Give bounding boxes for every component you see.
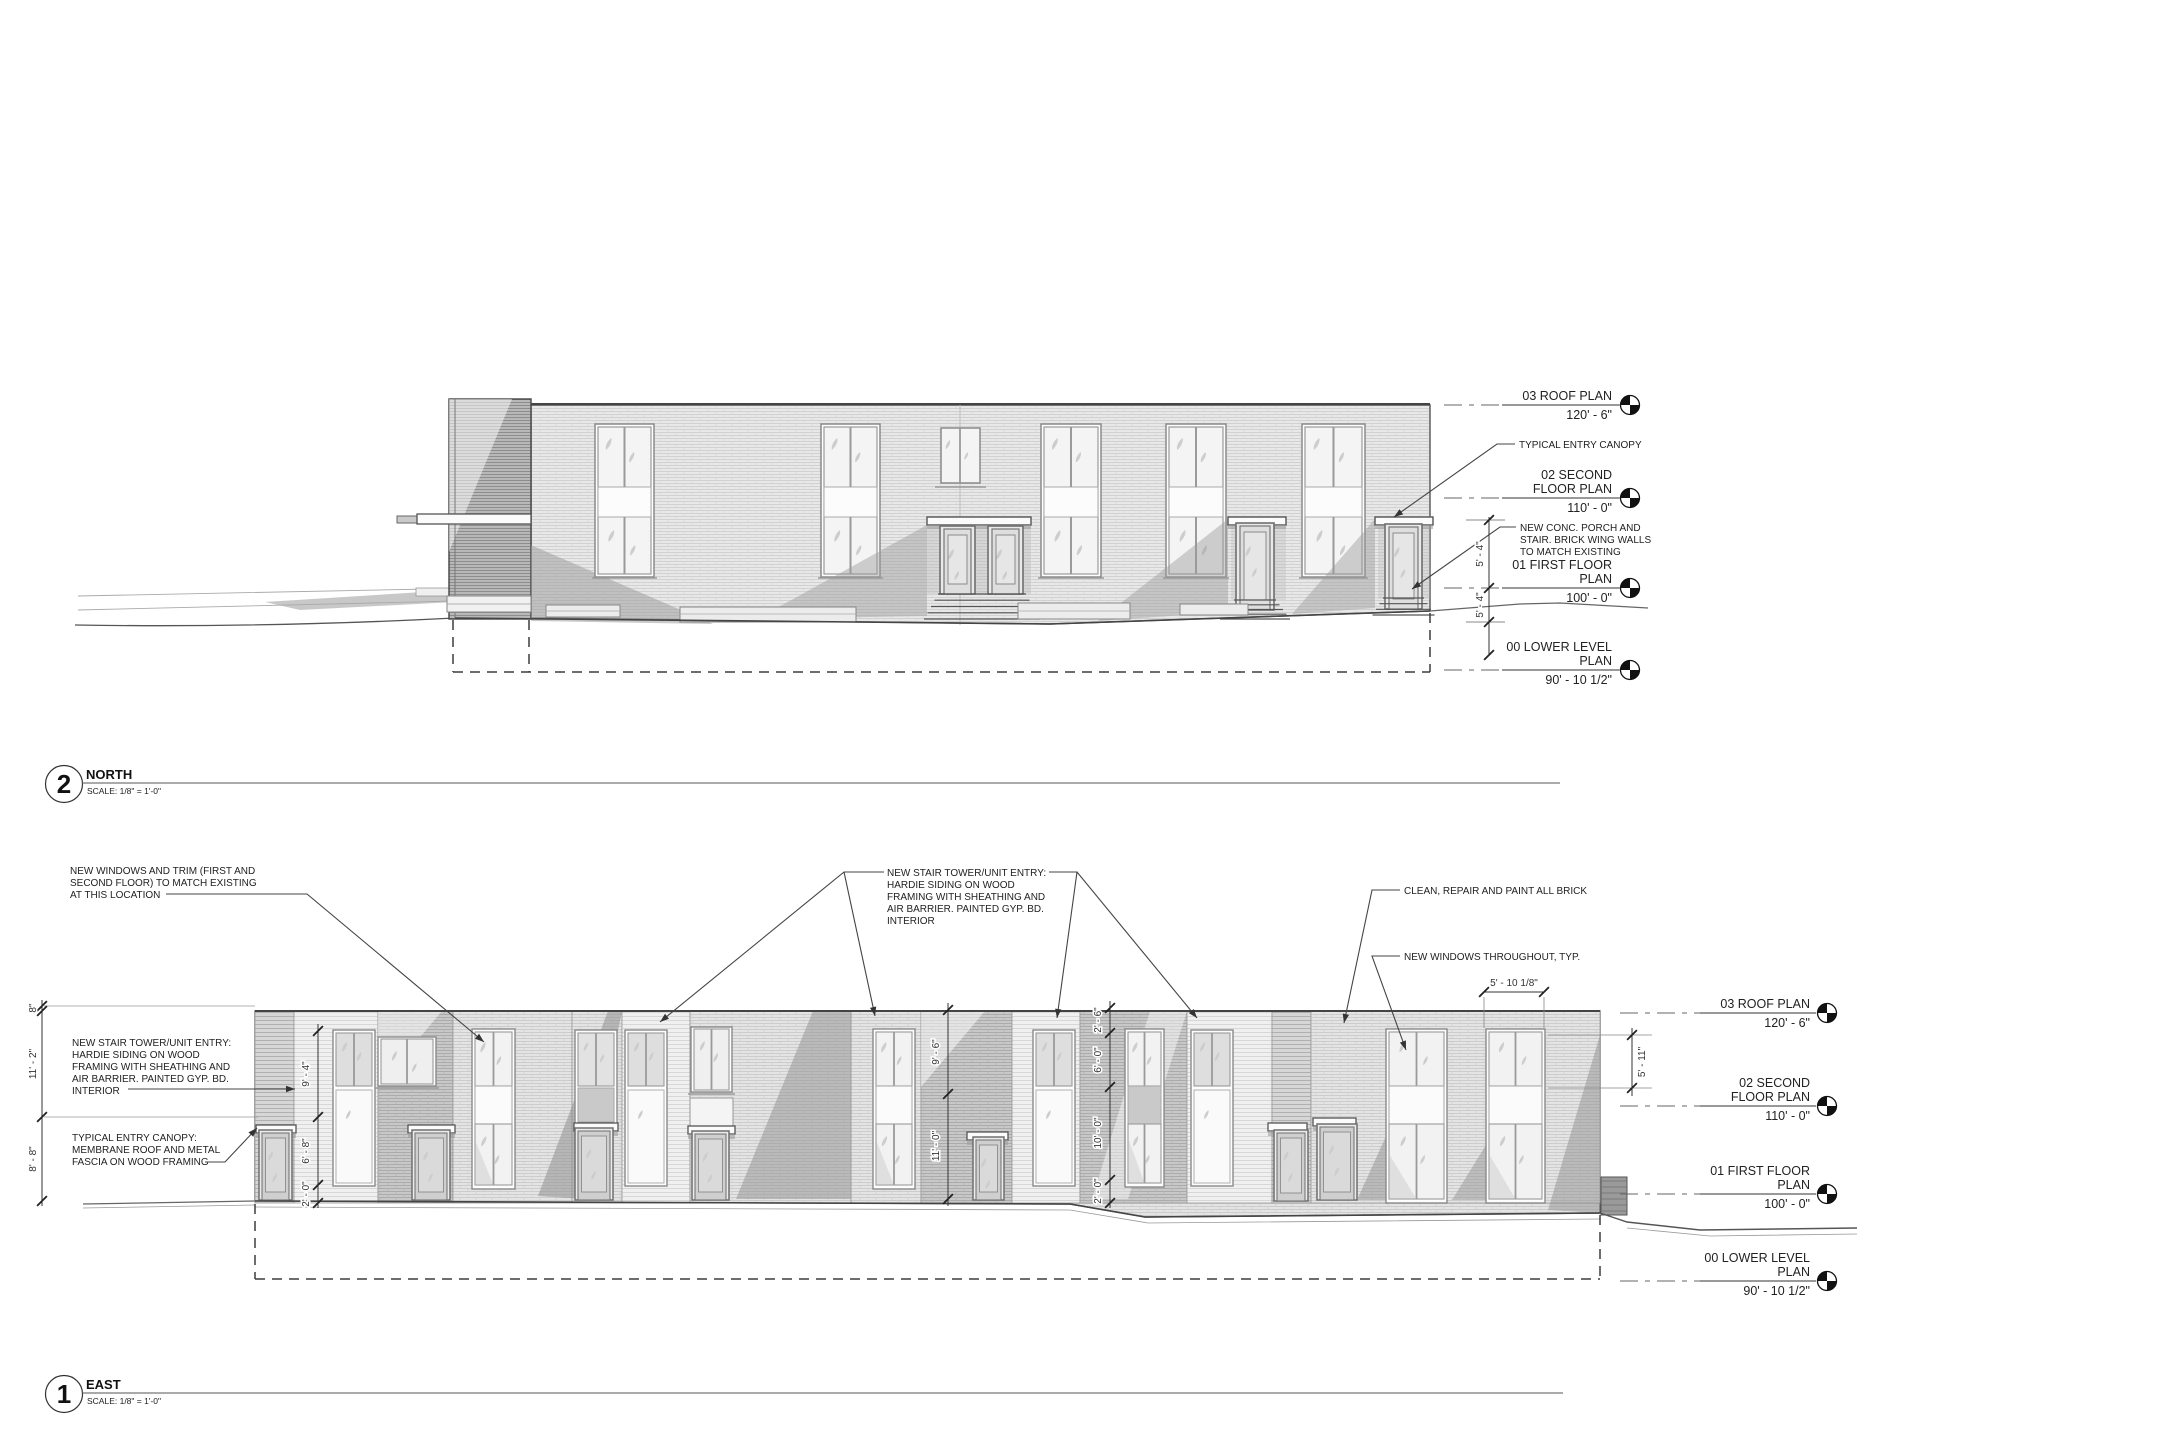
svg-text:100' - 0": 100' - 0" (1764, 1197, 1810, 1211)
svg-text:PLAN: PLAN (1579, 654, 1612, 668)
svg-text:00 LOWER LEVEL: 00 LOWER LEVEL (1506, 640, 1612, 654)
svg-text:FRAMING WITH SHEATHING AND: FRAMING WITH SHEATHING AND (72, 1062, 230, 1073)
svg-text:1: 1 (57, 1379, 71, 1409)
svg-text:02 SECOND: 02 SECOND (1541, 468, 1612, 482)
svg-text:120' - 6": 120' - 6" (1566, 408, 1612, 422)
svg-text:6' - 8": 6' - 8" (301, 1138, 312, 1164)
svg-text:FLOOR PLAN: FLOOR PLAN (1731, 1090, 1810, 1104)
svg-text:11' - 0": 11' - 0" (931, 1130, 942, 1161)
svg-text:110' - 0": 110' - 0" (1765, 1109, 1810, 1123)
svg-text:100' - 0": 100' - 0" (1566, 591, 1612, 605)
svg-text:SCALE: 1/8" = 1'-0": SCALE: 1/8" = 1'-0" (87, 1396, 161, 1406)
svg-text:2' - 6": 2' - 6" (1093, 1007, 1104, 1033)
svg-text:9' - 6": 9' - 6" (931, 1039, 942, 1065)
svg-text:CLEAN, REPAIR AND PAINT ALL BR: CLEAN, REPAIR AND PAINT ALL BRICK (1404, 886, 1587, 897)
svg-text:TYPICAL ENTRY CANOPY: TYPICAL ENTRY CANOPY (1519, 440, 1642, 451)
svg-text:NEW CONC. PORCH AND: NEW CONC. PORCH AND (1520, 523, 1641, 534)
svg-text:8": 8" (28, 1003, 39, 1013)
svg-text:AT THIS LOCATION: AT THIS LOCATION (70, 890, 160, 901)
svg-text:10' - 0": 10' - 0" (1093, 1117, 1104, 1148)
svg-text:90' - 10 1/2": 90' - 10 1/2" (1743, 1284, 1810, 1298)
svg-text:PLAN: PLAN (1777, 1178, 1810, 1192)
svg-text:00 LOWER LEVEL: 00 LOWER LEVEL (1704, 1251, 1810, 1265)
svg-text:EAST: EAST (86, 1377, 121, 1392)
svg-text:SCALE: 1/8" = 1'-0": SCALE: 1/8" = 1'-0" (87, 786, 161, 796)
svg-text:5' - 10 1/8": 5' - 10 1/8" (1490, 978, 1538, 989)
svg-text:INTERIOR: INTERIOR (887, 916, 935, 927)
svg-text:2' - 0": 2' - 0" (1093, 1178, 1104, 1204)
svg-text:NEW STAIR TOWER/UNIT ENTRY:: NEW STAIR TOWER/UNIT ENTRY: (887, 868, 1046, 879)
svg-text:02 SECOND: 02 SECOND (1739, 1076, 1810, 1090)
svg-text:2: 2 (57, 769, 71, 799)
svg-text:TYPICAL ENTRY CANOPY:: TYPICAL ENTRY CANOPY: (72, 1133, 197, 1144)
svg-text:HARDIE SIDING ON WOOD: HARDIE SIDING ON WOOD (72, 1050, 200, 1061)
svg-text:NEW WINDOWS AND TRIM (FIRST AN: NEW WINDOWS AND TRIM (FIRST AND (70, 866, 255, 877)
svg-text:MEMBRANE ROOF AND METAL: MEMBRANE ROOF AND METAL (72, 1145, 221, 1156)
svg-text:TO MATCH EXISTING: TO MATCH EXISTING (1520, 547, 1621, 558)
svg-text:6' - 0": 6' - 0" (1093, 1047, 1104, 1073)
svg-text:NEW WINDOWS THROUGHOUT, TYP.: NEW WINDOWS THROUGHOUT, TYP. (1404, 952, 1580, 963)
svg-text:01 FIRST FLOOR: 01 FIRST FLOOR (1512, 558, 1612, 572)
svg-text:9' - 4": 9' - 4" (301, 1061, 312, 1087)
svg-text:PLAN: PLAN (1579, 572, 1612, 586)
svg-text:8' - 8": 8' - 8" (28, 1146, 39, 1172)
svg-text:110' - 0": 110' - 0" (1567, 501, 1612, 515)
svg-text:120' - 6": 120' - 6" (1764, 1016, 1810, 1030)
svg-text:03 ROOF PLAN: 03 ROOF PLAN (1720, 997, 1810, 1011)
svg-text:11' - 2": 11' - 2" (28, 1048, 39, 1079)
svg-text:FASCIA ON WOOD FRAMING: FASCIA ON WOOD FRAMING (72, 1157, 209, 1168)
svg-text:FLOOR PLAN: FLOOR PLAN (1533, 482, 1612, 496)
svg-text:SECOND FLOOR) TO MATCH EXISTIN: SECOND FLOOR) TO MATCH EXISTING (70, 878, 257, 889)
svg-text:INTERIOR: INTERIOR (72, 1086, 120, 1097)
svg-text:PLAN: PLAN (1777, 1265, 1810, 1279)
svg-text:5' - 4": 5' - 4" (1475, 592, 1486, 618)
svg-text:NEW STAIR TOWER/UNIT ENTRY:: NEW STAIR TOWER/UNIT ENTRY: (72, 1038, 231, 1049)
svg-text:AIR BARRIER. PAINTED GYP. BD.: AIR BARRIER. PAINTED GYP. BD. (887, 904, 1044, 915)
svg-text:HARDIE SIDING ON WOOD: HARDIE SIDING ON WOOD (887, 880, 1015, 891)
svg-text:5' - 4": 5' - 4" (1475, 541, 1486, 567)
svg-text:03 ROOF PLAN: 03 ROOF PLAN (1522, 389, 1612, 403)
svg-text:5' - 11": 5' - 11" (1637, 1046, 1648, 1077)
svg-text:FRAMING WITH SHEATHING AND: FRAMING WITH SHEATHING AND (887, 892, 1045, 903)
svg-text:2' - 0": 2' - 0" (301, 1181, 312, 1207)
svg-text:STAIR. BRICK WING WALLS: STAIR. BRICK WING WALLS (1520, 535, 1651, 546)
svg-text:90' - 10 1/2": 90' - 10 1/2" (1545, 673, 1612, 687)
svg-text:01 FIRST FLOOR: 01 FIRST FLOOR (1710, 1164, 1810, 1178)
svg-text:AIR BARRIER. PAINTED GYP. BD.: AIR BARRIER. PAINTED GYP. BD. (72, 1074, 229, 1085)
svg-text:NORTH: NORTH (86, 767, 132, 782)
